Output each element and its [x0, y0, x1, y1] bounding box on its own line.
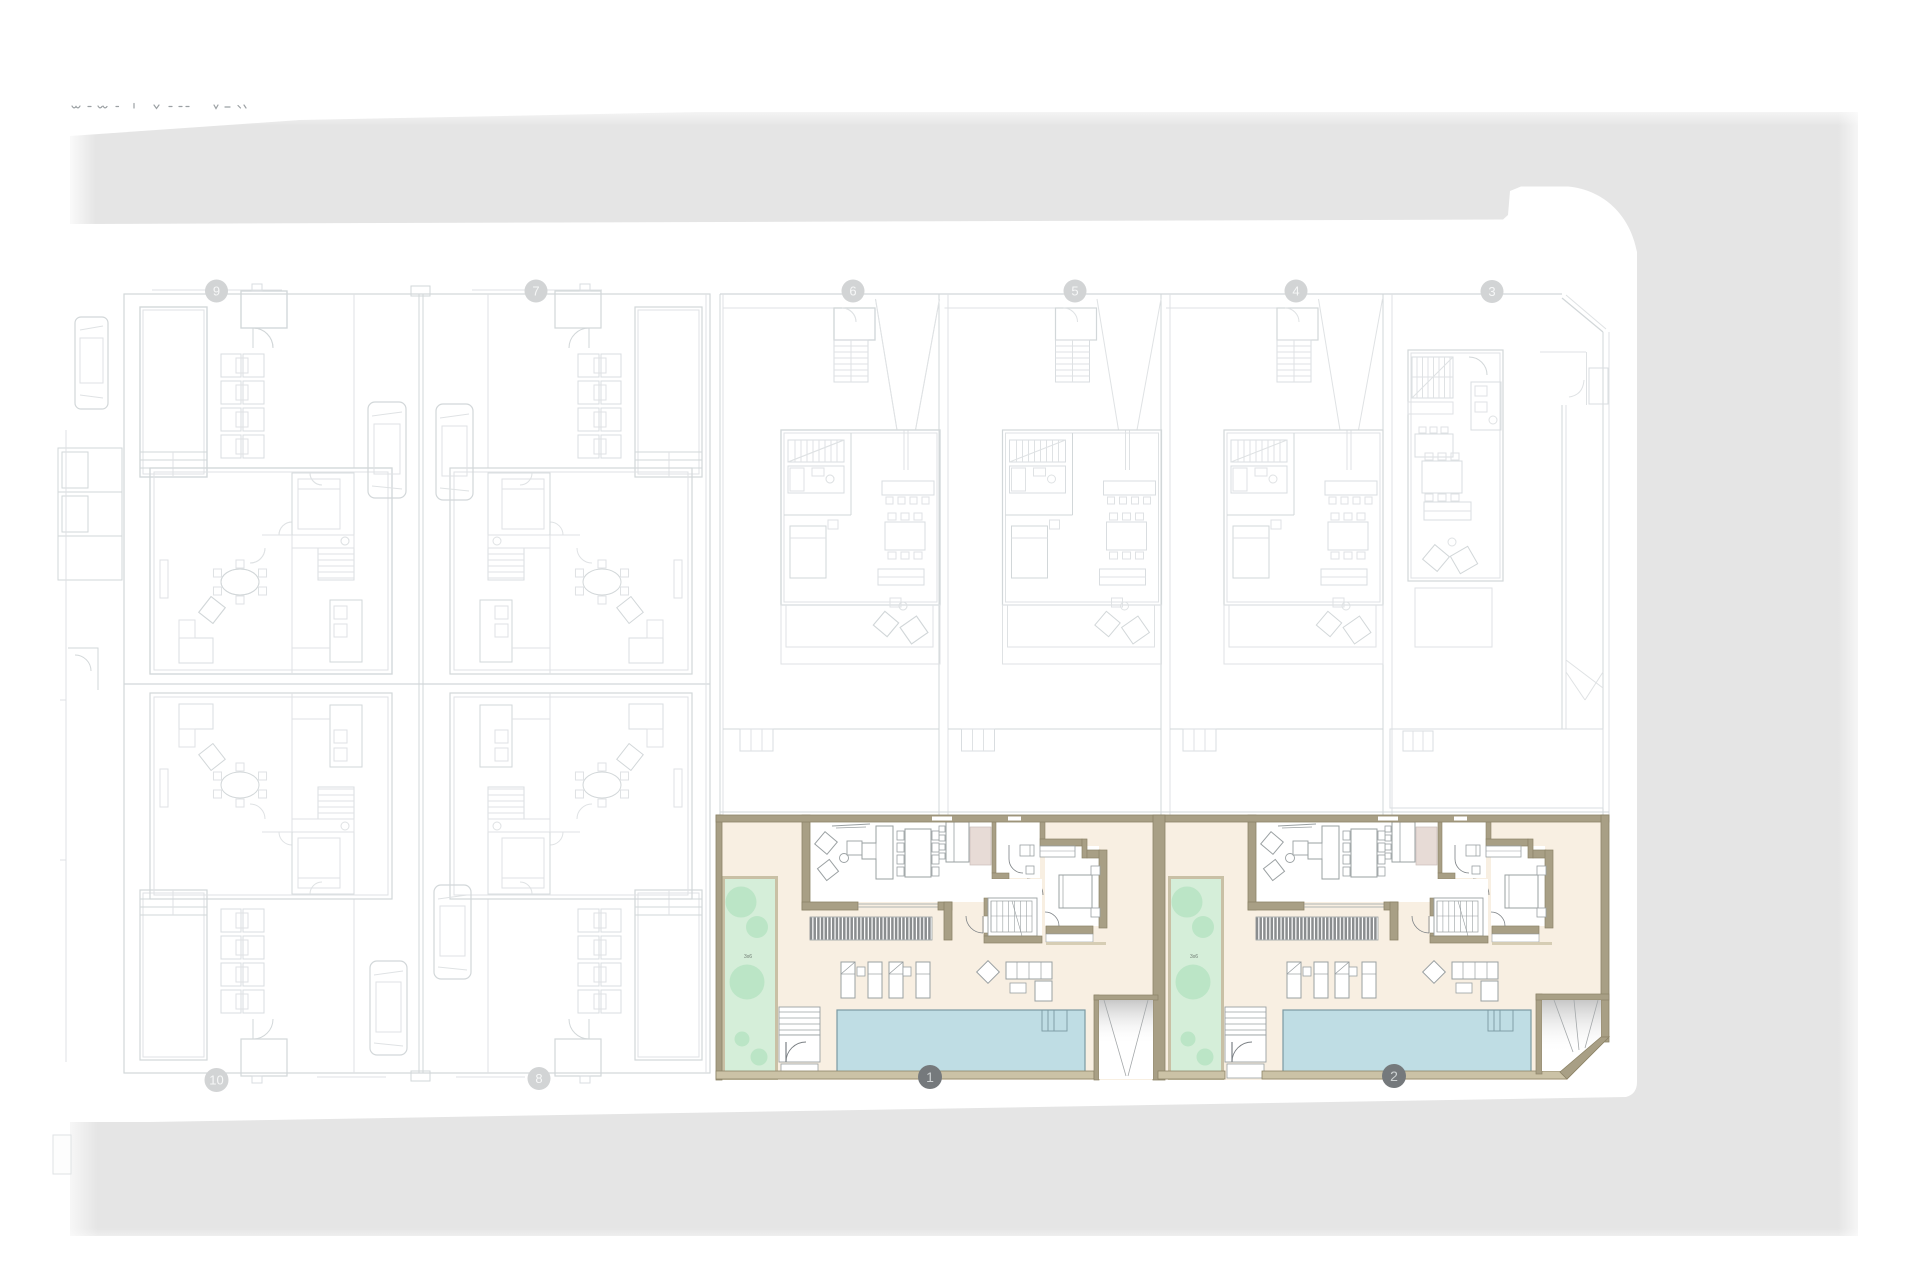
svg-text:4: 4	[1292, 284, 1299, 299]
svg-text:8: 8	[535, 1071, 542, 1086]
svg-text:1: 1	[926, 1069, 934, 1085]
svg-text:3x6: 3x6	[744, 954, 752, 960]
svg-text:2: 2	[1390, 1068, 1398, 1084]
svg-text:7: 7	[532, 284, 539, 299]
svg-text:6: 6	[849, 284, 856, 299]
svg-text:9: 9	[213, 284, 220, 299]
svg-text:3: 3	[1488, 284, 1495, 299]
svg-text:10: 10	[209, 1073, 223, 1088]
svg-text:5: 5	[1071, 284, 1078, 299]
svg-text:3x6: 3x6	[1190, 954, 1198, 960]
